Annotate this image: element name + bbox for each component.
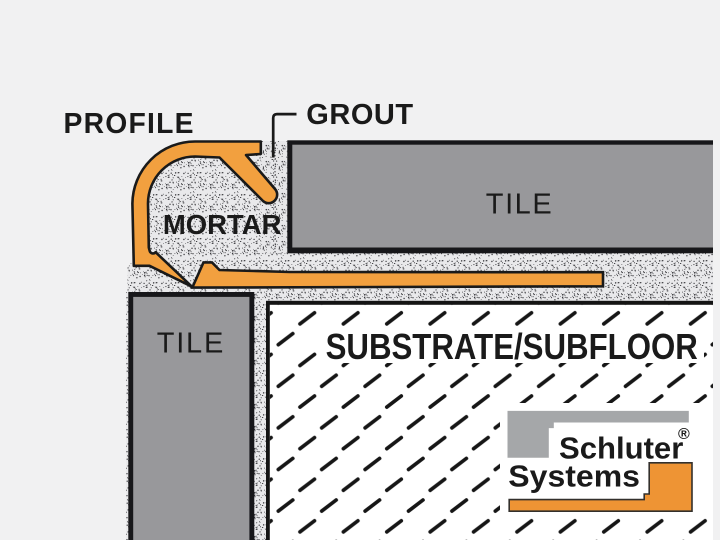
svg-text:PROFILE: PROFILE [64,107,194,139]
svg-text:TILE: TILE [486,188,552,220]
svg-text:GROUT: GROUT [306,99,413,131]
svg-text:®: ® [678,426,690,443]
svg-text:SUBSTRATE/SUBFLOOR: SUBSTRATE/SUBFLOOR [326,326,698,367]
svg-text:Systems: Systems [508,460,640,494]
svg-text:TILE: TILE [157,328,224,360]
svg-text:MORTAR: MORTAR [163,209,282,240]
